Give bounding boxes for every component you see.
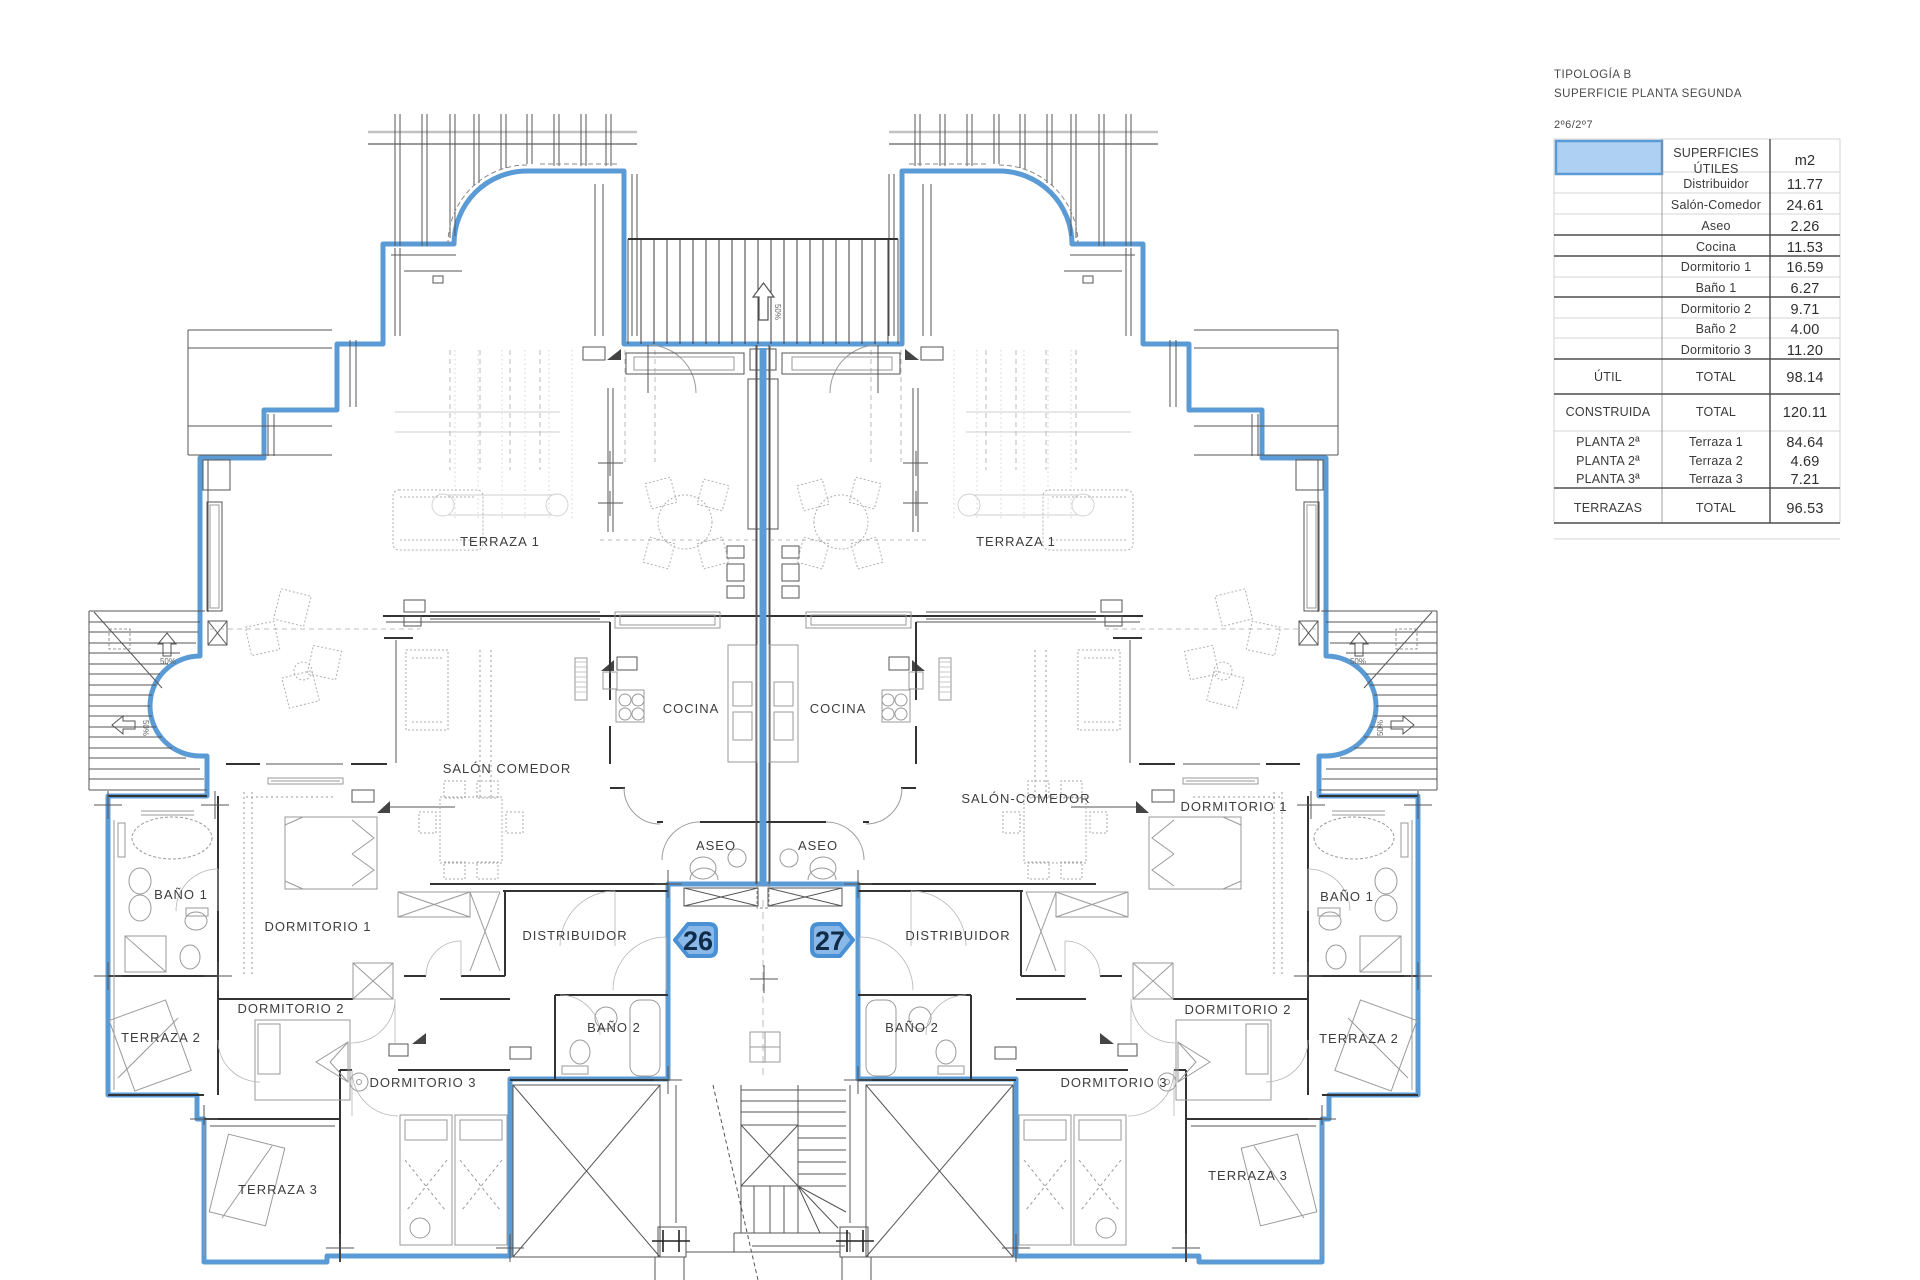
svg-text:TOTAL: TOTAL	[1696, 405, 1736, 419]
svg-text:24.61: 24.61	[1786, 198, 1823, 214]
svg-text:2.26: 2.26	[1790, 219, 1819, 235]
svg-text:SUPERFICIES: SUPERFICIES	[1673, 146, 1759, 160]
svg-text:16.59: 16.59	[1786, 260, 1823, 276]
svg-text:4.69: 4.69	[1790, 454, 1819, 470]
svg-text:ASEO: ASEO	[798, 838, 838, 853]
svg-text:84.64: 84.64	[1786, 435, 1823, 451]
svg-text:ÚTIL: ÚTIL	[1594, 369, 1622, 384]
svg-text:50%: 50%	[1350, 657, 1366, 666]
svg-text:96.53: 96.53	[1786, 501, 1823, 517]
svg-text:BAÑO 1: BAÑO 1	[154, 887, 208, 902]
svg-text:Dormitorio 1: Dormitorio 1	[1681, 260, 1751, 274]
svg-text:4.00: 4.00	[1790, 322, 1819, 338]
svg-text:DORMITORIO 3: DORMITORIO 3	[369, 1075, 476, 1090]
svg-text:TERRAZA 1: TERRAZA 1	[976, 534, 1056, 549]
svg-text:TERRAZA 3: TERRAZA 3	[238, 1182, 318, 1197]
svg-text:PLANTA 3ª: PLANTA 3ª	[1576, 472, 1640, 486]
svg-text:DORMITORIO 3: DORMITORIO 3	[1060, 1075, 1167, 1090]
svg-text:Baño 1: Baño 1	[1696, 281, 1737, 295]
svg-text:COCINA: COCINA	[663, 701, 720, 716]
svg-text:TERRAZA 1: TERRAZA 1	[460, 534, 540, 549]
svg-text:Cocina: Cocina	[1696, 240, 1736, 254]
svg-text:Salón-Comedor: Salón-Comedor	[1671, 198, 1761, 212]
svg-text:PLANTA 2ª: PLANTA 2ª	[1576, 454, 1640, 468]
svg-text:CONSTRUIDA: CONSTRUIDA	[1566, 405, 1651, 419]
svg-text:50%: 50%	[160, 657, 176, 666]
svg-text:DORMITORIO 1: DORMITORIO 1	[264, 919, 371, 934]
svg-text:Aseo: Aseo	[1701, 219, 1730, 233]
svg-text:PLANTA 2ª: PLANTA 2ª	[1576, 435, 1640, 449]
svg-text:BAÑO 2: BAÑO 2	[587, 1020, 641, 1035]
svg-text:Baño 2: Baño 2	[1696, 322, 1737, 336]
svg-text:2º6/2º7: 2º6/2º7	[1554, 119, 1593, 131]
svg-text:TERRAZA 2: TERRAZA 2	[1319, 1031, 1399, 1046]
svg-text:SALÓN-COMEDOR: SALÓN-COMEDOR	[961, 791, 1090, 806]
svg-text:Distribuidor: Distribuidor	[1683, 177, 1749, 191]
svg-text:TERRAZA 3: TERRAZA 3	[1208, 1168, 1288, 1183]
svg-text:TERRAZA 2: TERRAZA 2	[121, 1030, 201, 1045]
svg-text:6.27: 6.27	[1790, 281, 1819, 297]
svg-text:27: 27	[815, 926, 845, 956]
svg-text:ASEO: ASEO	[696, 838, 736, 853]
svg-text:TOTAL: TOTAL	[1696, 501, 1736, 515]
svg-text:SUPERFICIE PLANTA SEGUNDA: SUPERFICIE PLANTA SEGUNDA	[1554, 88, 1742, 100]
svg-text:11.77: 11.77	[1787, 177, 1823, 193]
svg-text:11.53: 11.53	[1787, 240, 1823, 256]
svg-text:26: 26	[683, 926, 713, 956]
svg-text:TERRAZAS: TERRAZAS	[1574, 501, 1642, 515]
svg-text:120.11: 120.11	[1783, 405, 1827, 421]
svg-text:BAÑO 2: BAÑO 2	[885, 1020, 939, 1035]
svg-text:m2: m2	[1795, 153, 1816, 169]
svg-text:50%: 50%	[141, 720, 150, 736]
svg-text:TIPOLOGÍA B: TIPOLOGÍA B	[1554, 68, 1632, 81]
svg-text:SALÓN COMEDOR: SALÓN COMEDOR	[443, 761, 572, 776]
svg-text:DORMITORIO 2: DORMITORIO 2	[237, 1001, 344, 1016]
svg-text:TOTAL: TOTAL	[1696, 370, 1736, 384]
svg-text:50%: 50%	[1376, 720, 1385, 736]
svg-text:9.71: 9.71	[1790, 302, 1819, 318]
svg-text:DISTRIBUIDOR: DISTRIBUIDOR	[905, 928, 1010, 943]
svg-text:BAÑO 1: BAÑO 1	[1320, 889, 1374, 904]
svg-text:11.20: 11.20	[1787, 343, 1823, 359]
svg-text:Terraza 2: Terraza 2	[1689, 454, 1743, 468]
svg-text:7.21: 7.21	[1790, 472, 1819, 488]
svg-text:98.14: 98.14	[1786, 370, 1823, 386]
svg-text:DORMITORIO 1: DORMITORIO 1	[1180, 799, 1287, 814]
svg-text:Dormitorio 2: Dormitorio 2	[1681, 302, 1751, 316]
svg-text:DISTRIBUIDOR: DISTRIBUIDOR	[522, 928, 627, 943]
svg-text:50%: 50%	[773, 304, 782, 320]
svg-text:Dormitorio 3: Dormitorio 3	[1681, 343, 1751, 357]
svg-text:COCINA: COCINA	[810, 701, 867, 716]
svg-text:Terraza 1: Terraza 1	[1689, 435, 1743, 449]
svg-text:Terraza 3: Terraza 3	[1689, 472, 1743, 486]
svg-text:ÚTILES: ÚTILES	[1694, 161, 1739, 176]
svg-text:DORMITORIO 2: DORMITORIO 2	[1184, 1002, 1291, 1017]
